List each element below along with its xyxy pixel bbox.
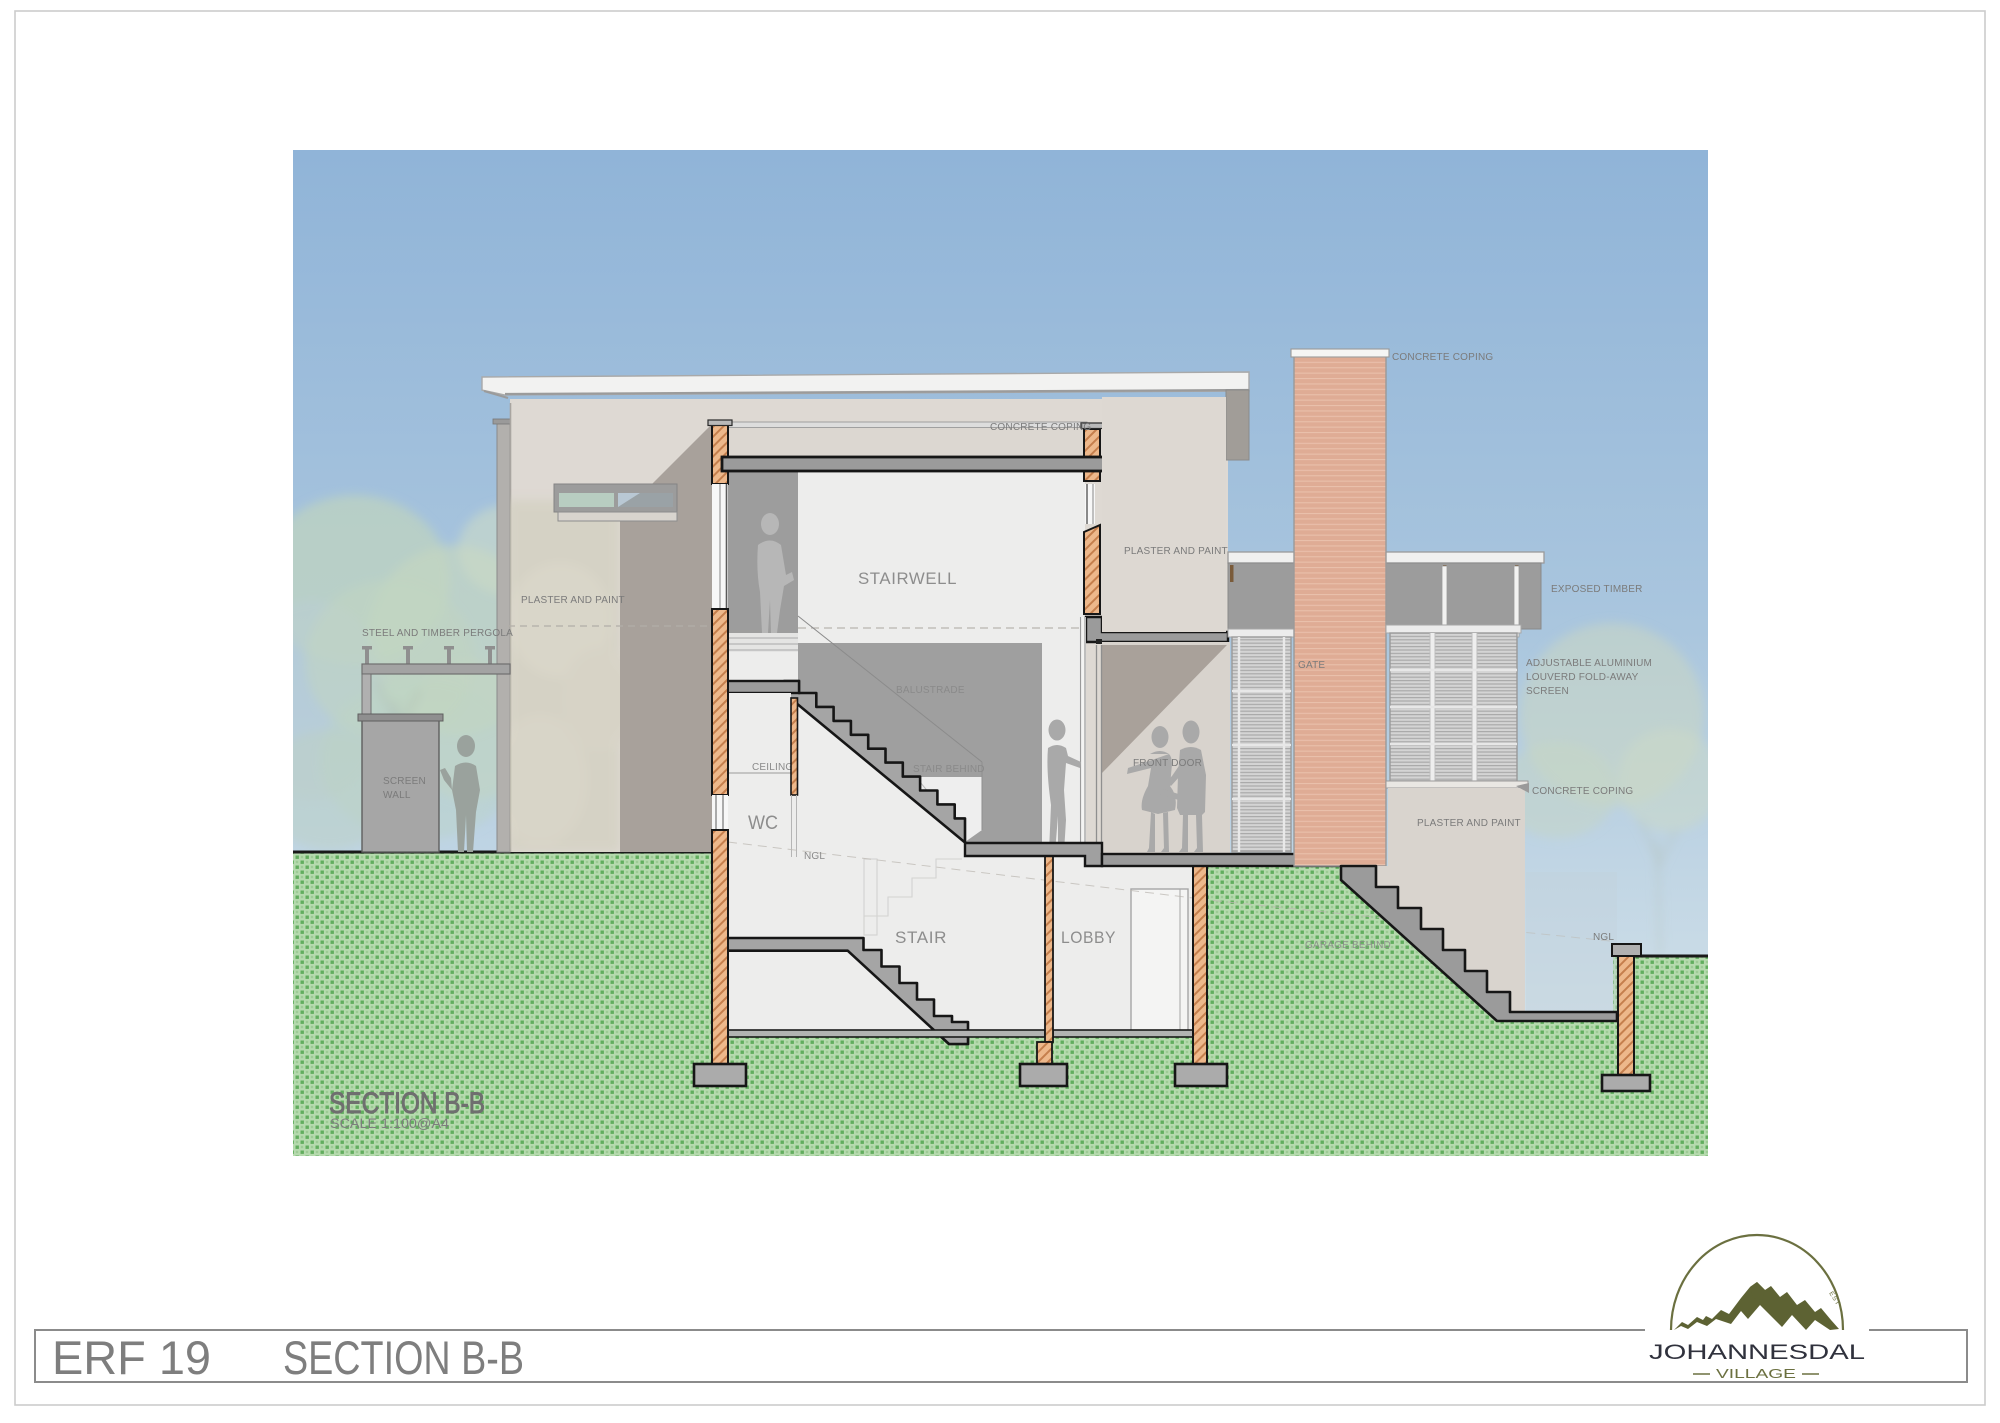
svg-text:STEEL AND TIMBER PERGOLA: STEEL AND TIMBER PERGOLA [362, 628, 513, 639]
svg-text:ERF 19: ERF 19 [52, 1331, 211, 1384]
svg-text:CONCRETE COPING: CONCRETE COPING [1532, 786, 1633, 797]
svg-text:JOHANNESDAL: JOHANNESDAL [1649, 1341, 1865, 1364]
svg-text:GATE: GATE [1298, 660, 1325, 671]
svg-text:CONCRETE COPING: CONCRETE COPING [990, 422, 1091, 433]
svg-text:GARAGE BEHIND: GARAGE BEHIND [1305, 940, 1391, 951]
svg-text:PLASTER AND PAINT: PLASTER AND PAINT [1417, 818, 1521, 829]
svg-text:STAIR: STAIR [895, 928, 947, 947]
svg-text:NGL: NGL [1593, 932, 1614, 943]
svg-text:FRONT DOOR: FRONT DOOR [1133, 758, 1202, 769]
svg-text:BALUSTRADE: BALUSTRADE [896, 685, 965, 696]
svg-text:SCREEN: SCREEN [1526, 686, 1569, 697]
svg-text:WALL: WALL [383, 790, 411, 801]
svg-text:VILLAGE: VILLAGE [1716, 1367, 1796, 1381]
svg-text:SCALE 1:100@A4: SCALE 1:100@A4 [330, 1116, 450, 1131]
svg-text:CEILING: CEILING [752, 762, 793, 773]
svg-text:EXPOSED TIMBER: EXPOSED TIMBER [1551, 584, 1643, 595]
svg-text:SECTION B-B: SECTION B-B [283, 1331, 524, 1384]
svg-text:ADJUSTABLE ALUMINIUM: ADJUSTABLE ALUMINIUM [1526, 658, 1652, 669]
svg-text:SCREEN: SCREEN [383, 776, 426, 787]
svg-text:PLASTER AND PAINT: PLASTER AND PAINT [521, 595, 625, 606]
svg-text:LOUVERD FOLD-AWAY: LOUVERD FOLD-AWAY [1526, 672, 1639, 683]
svg-text:STAIR BEHIND: STAIR BEHIND [913, 764, 985, 775]
svg-text:PLASTER AND PAINT: PLASTER AND PAINT [1124, 546, 1228, 557]
svg-text:LOBBY: LOBBY [1061, 928, 1116, 947]
svg-text:WC: WC [748, 813, 778, 834]
svg-text:NGL: NGL [804, 851, 825, 862]
svg-text:STAIRWELL: STAIRWELL [858, 569, 957, 588]
svg-text:CONCRETE COPING: CONCRETE COPING [1392, 352, 1493, 363]
